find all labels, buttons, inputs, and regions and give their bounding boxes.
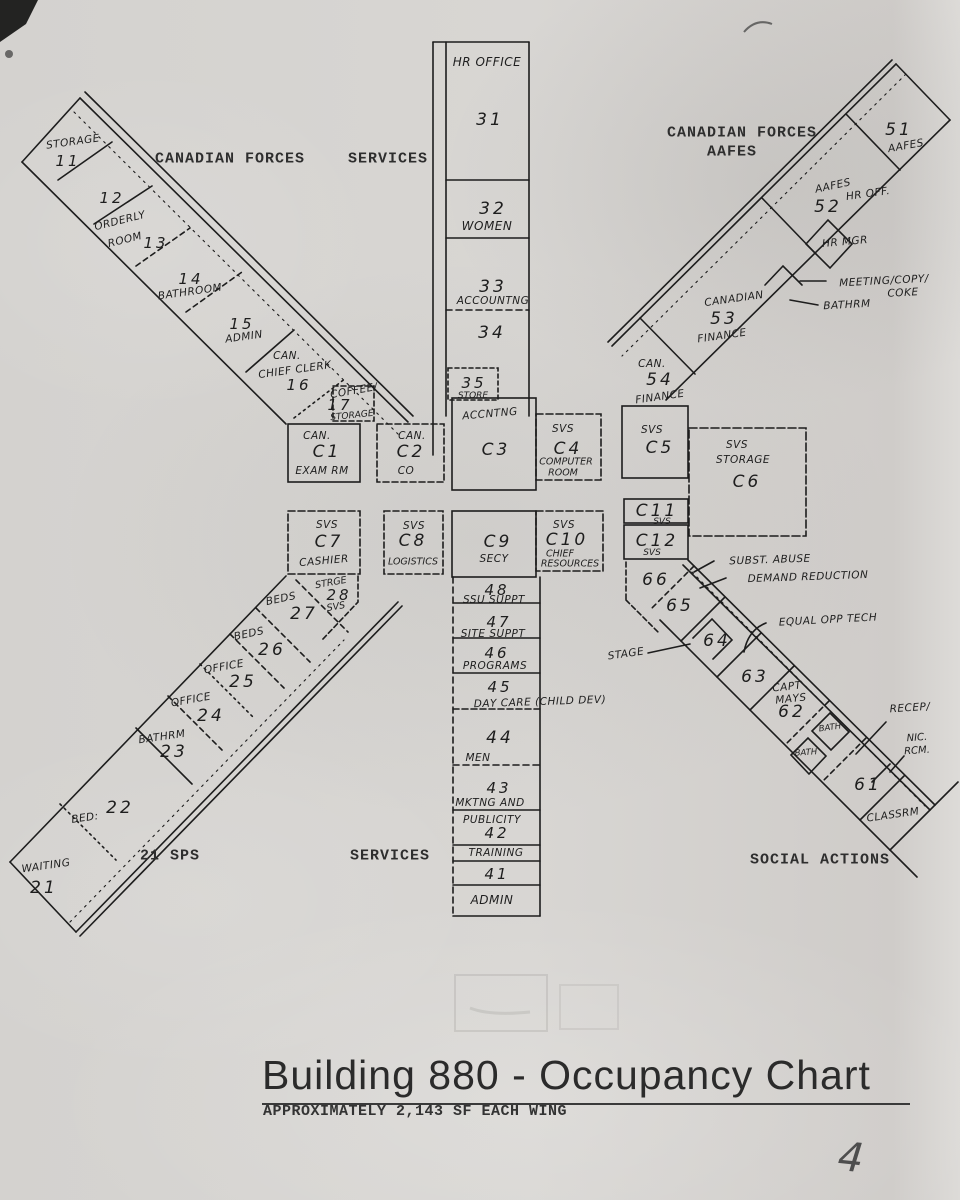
room-32-name: WOMEN: [462, 219, 513, 233]
room-22-number: 22: [106, 798, 134, 818]
room-26-number: 26: [258, 640, 286, 660]
room-43-number: 43: [486, 779, 511, 797]
room-11-number: 11: [55, 152, 80, 170]
section-label-21-sps: 21 SPS: [140, 848, 200, 865]
room-31-number: 31: [476, 110, 504, 130]
room-52-number: 52: [814, 197, 842, 217]
room-c9-label: SECY: [479, 553, 508, 565]
room-c6-number: C6: [733, 472, 762, 492]
room-45-number: 45: [487, 678, 512, 696]
room-25-number: 25: [229, 672, 257, 692]
room-46-name: PROGRAMS: [463, 660, 527, 672]
page-title: Building 880 - Occupancy Chart: [262, 1052, 910, 1105]
room-53-number: 53: [710, 309, 738, 329]
room-c9-number: C9: [484, 532, 513, 552]
room-c1-number: C1: [313, 442, 342, 462]
room-35-name: STORE: [458, 391, 488, 401]
room-48-name: SSU SUPPT: [463, 594, 525, 606]
section-label-services-south: SERVICES: [350, 848, 430, 865]
nic-callout-1: NIC.: [906, 732, 927, 744]
page-number: 4: [836, 1134, 866, 1182]
room-62-number: 62: [778, 702, 806, 722]
room-c6-label-1: SVS: [726, 439, 748, 451]
room-c8-label-2: LOGISTICS: [388, 557, 438, 568]
room-21-number: 21: [30, 878, 58, 898]
room-c2-number: C2: [397, 442, 426, 462]
room-13-number: 13: [143, 234, 168, 252]
room-54-number: 54: [646, 370, 674, 390]
room-12-number: 12: [99, 189, 124, 207]
room-54-name-1: CAN.: [638, 358, 666, 370]
room-33-number: 33: [479, 277, 507, 297]
room-c1-label-1: CAN.: [303, 430, 331, 442]
room-c3-number: C3: [482, 440, 511, 460]
room-64-number: 64: [703, 631, 731, 651]
bath-lower-label: BATH: [794, 747, 817, 759]
room-33-name: ACCOUNTNG: [457, 295, 530, 307]
room-c4-label-3: ROOM: [548, 468, 578, 479]
room-c10-number: C10: [546, 530, 589, 550]
room-c5-number: C5: [646, 438, 675, 458]
room-43-name-1: MKTNG AND: [455, 797, 524, 809]
page-subtitle: APPROXIMATELY 2,143 SF EACH WING: [263, 1103, 567, 1120]
room-34-number: 34: [478, 323, 506, 343]
room-66-number: 66: [642, 570, 670, 590]
section-label-services-north: SERVICES: [348, 151, 428, 168]
room-c2-label-1: CAN.: [398, 430, 426, 442]
room-24-number: 24: [197, 706, 225, 726]
nic-callout-2: RCM.: [904, 745, 930, 758]
room-44-number: 44: [486, 728, 514, 748]
room-16-name-1: CAN.: [273, 350, 301, 362]
room-27-number: 27: [290, 604, 318, 624]
room-c7-number: C7: [315, 532, 344, 552]
section-label-social-actions: SOCIAL ACTIONS: [750, 852, 890, 869]
room-41-name: ADMIN: [471, 893, 514, 907]
room-65-number: 65: [666, 596, 694, 616]
room-47-name: SITE SUPPT: [461, 628, 526, 640]
room-c4-label-2: COMPUTER: [539, 457, 592, 468]
room-44-name: MEN: [465, 752, 490, 764]
room-c8-number: C8: [399, 531, 428, 551]
room-c12-label: SVS: [643, 548, 661, 558]
room-63-number: 63: [741, 667, 769, 687]
room-c11-label: SVS: [653, 517, 671, 527]
room-c4-label-1: SVS: [552, 423, 574, 435]
room-16-number: 16: [286, 376, 311, 394]
room-c6-label-2: STORAGE: [716, 454, 770, 466]
room-51-number: 51: [885, 120, 913, 140]
room-23-number: 23: [160, 742, 188, 762]
bathrm-callout-ne: BATHRM: [823, 298, 871, 312]
room-42-name: TRAINING: [469, 847, 524, 859]
room-c5-label-1: SVS: [641, 424, 663, 436]
room-35-number: 35: [461, 374, 486, 392]
room-c1-label-2: EXAM RM: [295, 465, 348, 477]
room-42-number: 42: [484, 824, 509, 842]
section-label-aafes-ne: AAFES: [707, 144, 757, 161]
room-c2-label-2: CO: [398, 465, 415, 477]
room-32-number: 32: [479, 199, 507, 219]
room-c10-label-3: RESOURCES: [541, 559, 599, 570]
room-c7-label-1: SVS: [316, 519, 338, 531]
coke-callout: COKE: [887, 286, 919, 300]
room-61-number: 61: [854, 775, 882, 795]
section-label-canadian-forces-nw: CANADIAN FORCES: [155, 151, 305, 168]
hr-office-label: HR OFFICE: [453, 55, 521, 69]
room-41-number: 41: [484, 865, 509, 883]
section-label-canadian-forces-ne: CANADIAN FORCES: [667, 125, 817, 142]
scanned-occupancy-chart-page: CANADIAN FORCES SERVICES CANADIAN FORCES…: [0, 0, 960, 1200]
